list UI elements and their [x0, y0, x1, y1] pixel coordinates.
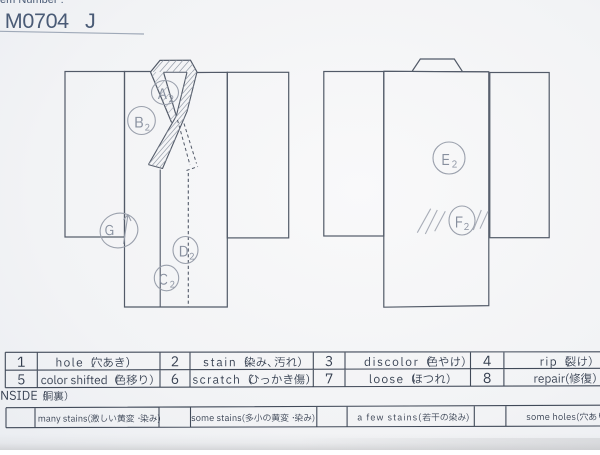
svg-text:J: J: [85, 9, 96, 33]
svg-text:M0704: M0704: [5, 9, 69, 33]
svg-text:tem Number :: tem Number :: [0, 0, 64, 6]
